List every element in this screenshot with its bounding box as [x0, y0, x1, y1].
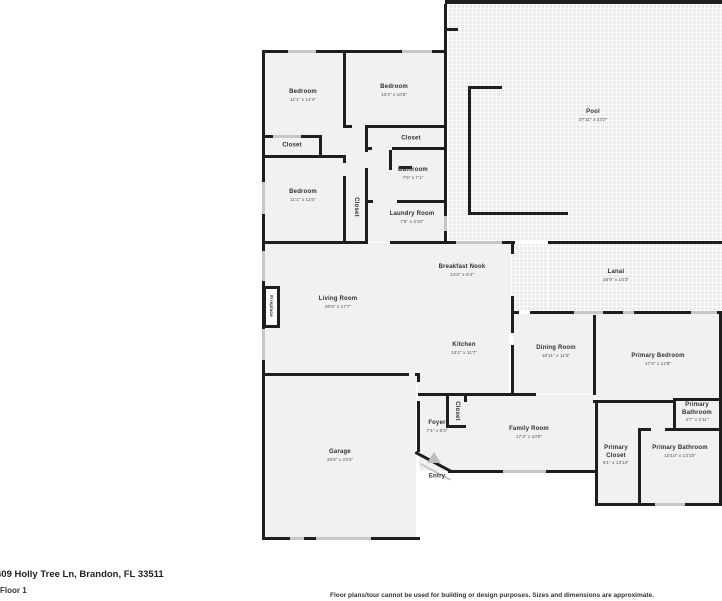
wall-segment [444, 28, 458, 31]
wall-segment [366, 200, 373, 203]
window-segment [290, 537, 304, 540]
wall-segment [511, 296, 514, 333]
window-segment [623, 311, 634, 314]
wall-segment [343, 176, 346, 244]
room-label-lanai: Lanai28'9" x 10'3" [603, 269, 629, 283]
window-segment [288, 50, 316, 53]
wall-segment [389, 150, 392, 170]
wall-segment [397, 200, 445, 203]
room-label-laundry-room: Laundry Room7'5" x 4'10" [390, 211, 435, 225]
room-label-kitchen: Kitchen13'2" x 11'7" [451, 342, 477, 356]
window-segment [262, 182, 265, 214]
floor-area [264, 243, 511, 332]
deck-area [548, 244, 722, 311]
wall-segment [593, 400, 676, 403]
window-segment [262, 329, 265, 360]
floor-area [417, 374, 509, 394]
room-label-bedroom-2: Bedroom13'4" x 10'8" [380, 84, 408, 98]
wall-segment [514, 311, 519, 314]
room-label-closet-foyer: Closet [452, 401, 460, 421]
room-label-fireplace: Fireplace [268, 295, 274, 317]
room-label-foyer: Foyer7'1" x 9'3" [427, 420, 448, 434]
wall-segment [366, 125, 445, 128]
deck-area [511, 244, 548, 311]
window-segment [691, 311, 717, 314]
wall-segment [446, 425, 466, 428]
wall-segment [343, 50, 346, 128]
floor-label: Floor 1 [0, 586, 27, 595]
room-label-closet-hall: Closet [401, 135, 421, 143]
room-label-primary-bathroom: Primary Bathroom10'10" x 13'10" [650, 445, 710, 459]
wall-segment [365, 168, 368, 244]
wall-segment [593, 315, 596, 395]
wall-segment [548, 241, 722, 244]
entry-direction-icon [427, 452, 441, 463]
room-label-bedroom-3: Bedroom11'1" x 11'5" [289, 189, 317, 203]
wall-segment [262, 241, 367, 244]
wall-segment [511, 241, 514, 254]
room-label-family-room: Family Room17'3" x 10'9" [509, 426, 549, 440]
window-segment [456, 241, 502, 244]
wall-segment [665, 428, 722, 431]
room-label-entry: Entry [429, 473, 445, 481]
wall-segment [511, 345, 514, 395]
wall-segment [673, 398, 722, 401]
wall-segment [418, 393, 536, 396]
window-segment [444, 216, 447, 231]
floorplan-canvas: 409 Holly Tree Ln, Brandon, FL 33511 Flo… [0, 0, 722, 601]
wall-segment [262, 50, 265, 243]
wall-segment [444, 4, 447, 50]
wall-segment [445, 0, 722, 4]
window-segment [273, 135, 301, 138]
wall-segment [366, 147, 372, 150]
wall-segment [262, 375, 265, 540]
property-address: 409 Holly Tree Ln, Brandon, FL 33511 [0, 569, 164, 580]
wall-segment [417, 401, 420, 452]
wall-segment [468, 86, 502, 89]
room-label-closet-bedroom-1: Closet [282, 142, 302, 150]
room-label-living-room: Living Room20'6" x 17'7" [319, 296, 358, 310]
wall-segment [468, 86, 471, 215]
wall-segment [390, 241, 447, 244]
wall-segment [262, 373, 409, 376]
wall-segment [343, 155, 346, 163]
room-label-dining-room: Dining Room10'11" x 11'5" [536, 345, 576, 359]
wall-segment [343, 125, 352, 128]
wall-segment [392, 147, 445, 150]
wall-segment [464, 394, 467, 402]
room-label-primary-closet: Primary Closet6'1" x 13'10" [598, 445, 634, 467]
wall-segment [417, 373, 420, 382]
window-segment [262, 251, 265, 281]
room-label-primary-bathroom-2: Primary Bathroom4'7" x 2'11" [677, 402, 717, 424]
window-segment [503, 470, 546, 473]
disclaimer-text: Floor plans/tour cannot be used for buil… [330, 592, 654, 599]
room-label-garage: Garage20'6" x 23'4" [327, 449, 353, 463]
window-segment [574, 311, 603, 314]
window-segment [655, 503, 685, 506]
room-label-closet-bedroom-3: Closet [351, 197, 359, 217]
window-segment [402, 50, 432, 53]
room-label-pool: Pool37'11" x 23'2" [579, 109, 608, 123]
room-label-breakfast-nook: Breakfast Nook13'2" x 9'4" [439, 264, 486, 278]
room-label-primary-bedroom: Primary Bedroom17'4" x 12'8" [631, 353, 684, 367]
wall-segment [673, 398, 676, 431]
wall-segment [468, 212, 568, 215]
wall-segment [262, 155, 346, 158]
room-label-bathroom: Bathroom7'5" x 7'1" [398, 167, 428, 181]
window-segment [316, 537, 371, 540]
room-label-bedroom-1: Bedroom11'1" x 14'4" [289, 89, 317, 103]
wall-segment [638, 431, 641, 505]
